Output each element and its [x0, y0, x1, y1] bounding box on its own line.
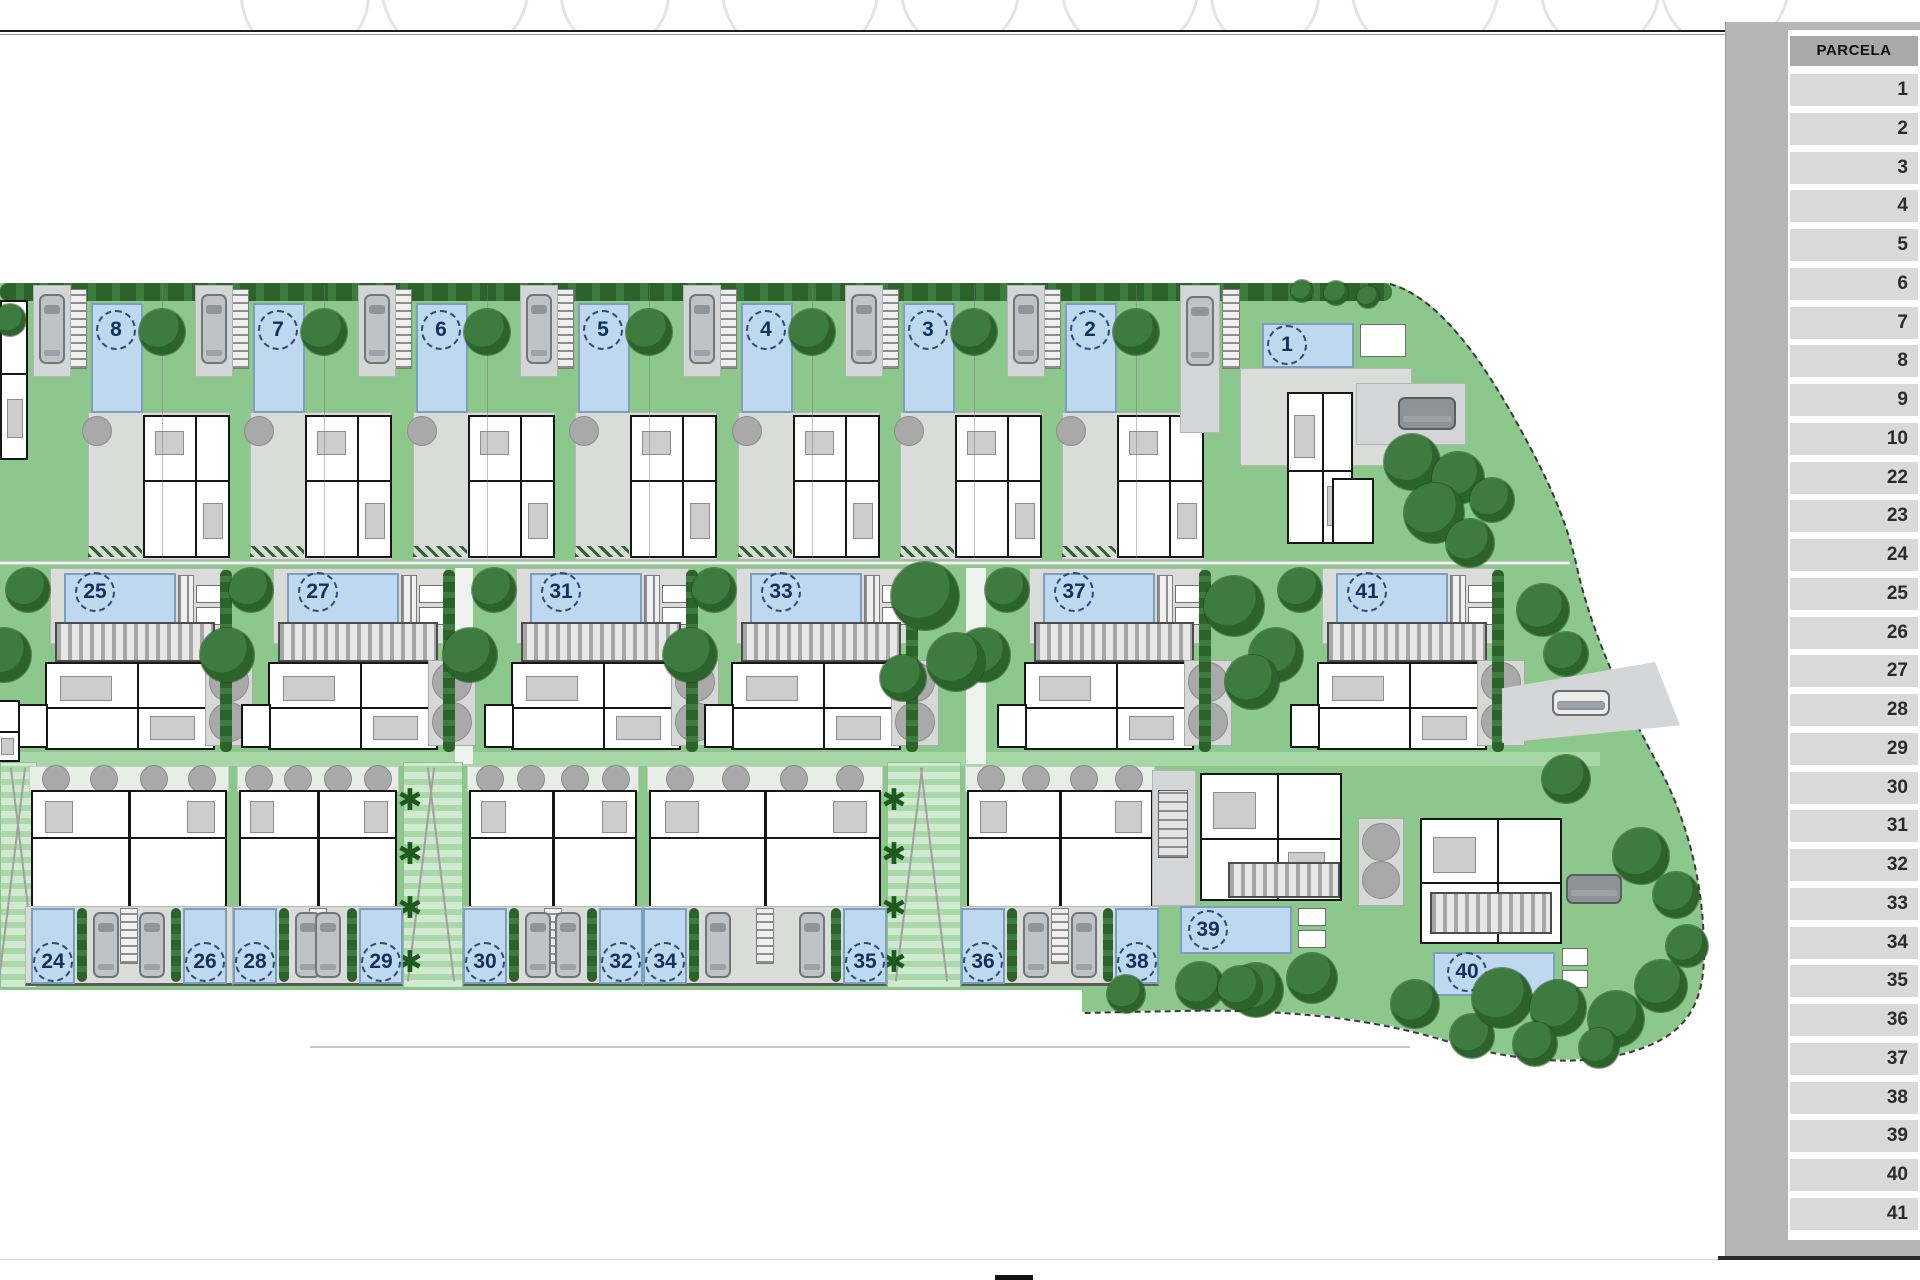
parcel-number: 37 — [1054, 572, 1094, 612]
house-floorplan — [0, 700, 20, 762]
house-wing — [997, 704, 1027, 748]
patio-tree-icon — [140, 765, 168, 793]
patio-tree-icon — [894, 416, 924, 446]
hedge-column — [347, 908, 357, 982]
tree-icon — [1204, 576, 1264, 636]
parcel-number: 28 — [235, 942, 275, 982]
tree-icon — [1470, 478, 1514, 522]
parcel-number: 31 — [541, 572, 581, 612]
hedge-marks — [1062, 546, 1116, 557]
car-icon — [315, 912, 341, 978]
parcela-table-rows: 1234567891022232425262728293031323334353… — [1790, 74, 1918, 1237]
car-icon — [1013, 294, 1039, 364]
tree-icon — [626, 309, 672, 355]
stairs — [882, 289, 899, 369]
tree-icon — [1472, 968, 1532, 1028]
hedge-column — [509, 908, 519, 982]
parcela-row: 38 — [1790, 1082, 1918, 1114]
parcel-number: 25 — [75, 572, 115, 612]
patio-tree-icon — [666, 765, 694, 793]
hedge-column — [587, 908, 597, 982]
parcela-row: 34 — [1790, 927, 1918, 959]
pergola-deck — [521, 622, 681, 662]
parcel-number: 4 — [746, 310, 786, 350]
tree-icon — [692, 568, 736, 612]
car-icon — [364, 294, 390, 364]
hedge-marks — [738, 546, 792, 557]
tree-icon — [0, 628, 31, 682]
parcela-row: 27 — [1790, 655, 1918, 687]
parcela-row: 25 — [1790, 578, 1918, 610]
parcela-row: 10 — [1790, 423, 1918, 455]
patio-tree-icon — [407, 416, 437, 446]
tree-icon — [789, 309, 835, 355]
parcel-number: 41 — [1347, 572, 1387, 612]
patio-tree-icon — [1056, 416, 1086, 446]
pergola-deck — [1034, 622, 1194, 662]
pergola-deck — [1327, 622, 1487, 662]
car-icon — [555, 912, 581, 978]
tree-icon — [1544, 632, 1588, 676]
parcela-row: 30 — [1790, 772, 1918, 804]
parcela-row: 9 — [1790, 384, 1918, 416]
tree-icon — [1287, 953, 1337, 1003]
pergola-deck — [278, 622, 438, 662]
pergola-deck — [55, 622, 215, 662]
entrance-stairs — [120, 908, 138, 964]
tree-icon — [1278, 568, 1322, 612]
patio-tree-icon — [284, 765, 312, 793]
parcela-row: 6 — [1790, 268, 1918, 300]
car-icon — [705, 912, 731, 978]
table-bottom-rule — [1718, 1256, 1920, 1260]
patio-tree-icon — [602, 765, 630, 793]
patio-tree-icon — [722, 765, 750, 793]
parcel-number: 2 — [1070, 310, 1110, 350]
patio-tree-icon — [1362, 823, 1400, 861]
parcela-row: 23 — [1790, 500, 1918, 532]
parcel-number: 29 — [361, 942, 401, 982]
tree-icon — [1542, 755, 1590, 803]
tree-icon — [985, 568, 1029, 612]
parcela-row: 32 — [1790, 849, 1918, 881]
tree-icon — [464, 309, 510, 355]
tree-icon — [1653, 872, 1699, 918]
tree-icon — [1291, 280, 1313, 302]
palm-icon: ✱ — [395, 840, 425, 870]
hedge-column — [689, 908, 699, 982]
tree-icon — [1324, 281, 1348, 305]
parcela-row: 5 — [1790, 229, 1918, 261]
house-wing — [484, 704, 514, 748]
stairs — [720, 289, 737, 369]
car-icon — [1552, 690, 1610, 716]
plan-layer: ✱✱✱✱✱✱✱✱87654321252731333741242628293032… — [0, 0, 1920, 1280]
stairs — [557, 289, 574, 369]
tree-icon — [1107, 975, 1145, 1013]
parcel-number: 27 — [298, 572, 338, 612]
row-divider-road — [0, 561, 1570, 565]
tree-icon — [1225, 655, 1279, 709]
house-floorplan — [305, 415, 392, 558]
parcela-row: 41 — [1790, 1198, 1918, 1230]
parcel-number: 24 — [33, 942, 73, 982]
tree-icon — [229, 568, 273, 612]
duplex-floorplan — [239, 790, 397, 908]
patio-tree-icon — [245, 765, 273, 793]
car-icon — [1071, 912, 1097, 978]
parcel-number: 32 — [601, 942, 641, 982]
car-icon — [139, 912, 165, 978]
hedge-marks — [900, 546, 954, 557]
palm-icon: ✱ — [879, 840, 909, 870]
patio-tree-icon — [90, 765, 118, 793]
tree-icon — [443, 628, 497, 682]
parcela-row: 4 — [1790, 190, 1918, 222]
house-floorplan — [1117, 415, 1204, 558]
hedge-column — [279, 908, 289, 982]
house-floorplan — [630, 415, 717, 558]
parcela-row: 8 — [1790, 345, 1918, 377]
parcela-row: 39 — [1790, 1120, 1918, 1152]
duplex-floorplan — [967, 790, 1153, 908]
tree-icon — [1446, 519, 1494, 567]
outdoor-kitchen — [1175, 585, 1201, 603]
parcel-number: 7 — [258, 310, 298, 350]
outdoor-kitchen — [1298, 908, 1326, 926]
parcela-row: 31 — [1790, 810, 1918, 842]
house-wing — [18, 704, 48, 748]
stairs — [70, 289, 87, 369]
hedge-column — [171, 908, 181, 982]
duplex-floorplan — [469, 790, 637, 908]
site-plan-sheet: ✱✱✱✱✱✱✱✱87654321252731333741242628293032… — [0, 0, 1920, 1280]
house-floorplan — [511, 662, 681, 750]
car-icon — [851, 294, 877, 364]
outdoor-kitchen — [1562, 948, 1588, 966]
tree-icon — [6, 568, 50, 612]
parcela-row: 22 — [1790, 462, 1918, 494]
car-icon — [689, 294, 715, 364]
tree-icon — [1666, 925, 1708, 967]
outdoor-kitchen — [419, 585, 445, 603]
patio-tree-icon — [977, 765, 1005, 793]
house-floorplan — [793, 415, 880, 558]
car-icon — [1398, 397, 1456, 430]
parcela-row: 26 — [1790, 617, 1918, 649]
stairs — [1044, 289, 1061, 369]
duplex-floorplan — [31, 790, 227, 908]
parcela-table-header: PARCELA — [1790, 36, 1918, 66]
tree-icon — [1517, 584, 1569, 636]
hedge-column — [1103, 908, 1113, 982]
rear-alley-strip — [0, 752, 1600, 766]
house-wing — [1332, 478, 1374, 544]
pergola-deck — [1430, 892, 1552, 934]
entrance-stairs — [1051, 908, 1069, 964]
tree-icon — [663, 628, 717, 682]
tree-icon — [1579, 1028, 1619, 1068]
house-floorplan — [1317, 662, 1487, 750]
hedge-marks — [250, 546, 304, 557]
parcel-number: 3 — [908, 310, 948, 350]
car-icon — [1186, 296, 1214, 366]
patio-tree-icon — [188, 765, 216, 793]
stairs — [395, 289, 412, 369]
parcel-number: 5 — [583, 310, 623, 350]
house-floorplan — [143, 415, 230, 558]
house-floorplan — [731, 662, 901, 750]
tree-icon — [891, 562, 959, 630]
parcela-row: 36 — [1790, 1004, 1918, 1036]
duplex-floorplan — [649, 790, 881, 908]
outdoor-kitchen — [196, 585, 222, 603]
house-wing — [1290, 704, 1320, 748]
tree-icon — [472, 568, 516, 612]
parcela-row: 35 — [1790, 965, 1918, 997]
tree-icon — [1113, 309, 1159, 355]
tree-icon — [301, 309, 347, 355]
tree-icon — [951, 309, 997, 355]
hedge-column — [77, 908, 87, 982]
house-floorplan — [268, 662, 438, 750]
parcel-number: 1 — [1267, 325, 1307, 365]
car-icon — [39, 294, 65, 364]
stairs — [232, 289, 249, 369]
tree-icon — [927, 633, 985, 691]
tree-icon — [1635, 960, 1687, 1012]
parcela-row: 1 — [1790, 74, 1918, 106]
tree-icon — [1357, 286, 1379, 308]
palm-icon: ✱ — [395, 786, 425, 816]
patio-tree-icon — [82, 416, 112, 446]
patio-tree-icon — [42, 765, 70, 793]
car-icon — [525, 912, 551, 978]
patio-tree-icon — [732, 416, 762, 446]
pergola-deck — [1228, 862, 1340, 898]
house-floorplan — [45, 662, 215, 750]
parcela-row: 33 — [1790, 888, 1918, 920]
stairs — [1222, 289, 1240, 369]
outdoor-kitchen — [1360, 324, 1406, 357]
tree-icon — [1513, 1022, 1557, 1066]
house-floorplan — [955, 415, 1042, 558]
hedge-marks — [575, 546, 629, 557]
parcela-row: 7 — [1790, 307, 1918, 339]
tree-icon — [880, 655, 926, 701]
outdoor-kitchen — [1298, 930, 1326, 948]
car-icon — [1566, 874, 1622, 904]
patio-tree-icon — [569, 416, 599, 446]
palm-icon: ✱ — [879, 786, 909, 816]
sheet-bottom-rule — [0, 1259, 1718, 1260]
parcela-row: 24 — [1790, 539, 1918, 571]
parcela-row: 28 — [1790, 694, 1918, 726]
patio-tree-icon — [561, 765, 589, 793]
tree-icon — [1176, 962, 1224, 1010]
tree-icon — [1613, 828, 1669, 884]
parcela-row: 3 — [1790, 152, 1918, 184]
tree-icon — [139, 309, 185, 355]
parcel-number: 26 — [185, 942, 225, 982]
tree-icon — [1391, 980, 1439, 1028]
patio-tree-icon — [1070, 765, 1098, 793]
car-icon — [201, 294, 227, 364]
parcela-row: 37 — [1790, 1043, 1918, 1075]
sheet-fold-mark — [995, 1275, 1033, 1280]
house-wing — [704, 704, 734, 748]
car-icon — [526, 294, 552, 364]
outdoor-kitchen — [662, 585, 688, 603]
patio-tree-icon — [244, 416, 274, 446]
pergola-deck — [741, 622, 901, 662]
parcela-row: 2 — [1790, 113, 1918, 145]
car-icon — [799, 912, 825, 978]
car-icon — [93, 912, 119, 978]
hedge-column — [831, 908, 841, 982]
outdoor-kitchen — [1468, 585, 1494, 603]
patio-tree-icon — [364, 765, 392, 793]
house-floorplan — [468, 415, 555, 558]
parcel-number: 33 — [761, 572, 801, 612]
parcel-number: 36 — [963, 942, 1003, 982]
parcel-number: 35 — [845, 942, 885, 982]
entrance-stairs — [756, 908, 774, 964]
tree-icon — [200, 628, 254, 682]
patio-tree-icon — [1362, 861, 1400, 899]
parcel-number: 39 — [1188, 910, 1228, 950]
car-lift — [1158, 790, 1188, 858]
road-edge-line — [310, 1046, 1410, 1048]
car-icon — [1023, 912, 1049, 978]
hedge-marks — [88, 546, 142, 557]
patio-tree-icon — [476, 765, 504, 793]
hedge-column — [1007, 908, 1017, 982]
tree-icon — [1218, 966, 1262, 1010]
house-wing — [241, 704, 271, 748]
hedge-marks — [413, 546, 467, 557]
parcel-number: 6 — [421, 310, 461, 350]
parcel-number: 30 — [465, 942, 505, 982]
parcela-row: 29 — [1790, 733, 1918, 765]
parcela-row: 40 — [1790, 1159, 1918, 1191]
parcel-number: 34 — [645, 942, 685, 982]
access-road — [1502, 662, 1680, 750]
parcel-number: 8 — [96, 310, 136, 350]
house-floorplan — [1024, 662, 1194, 750]
